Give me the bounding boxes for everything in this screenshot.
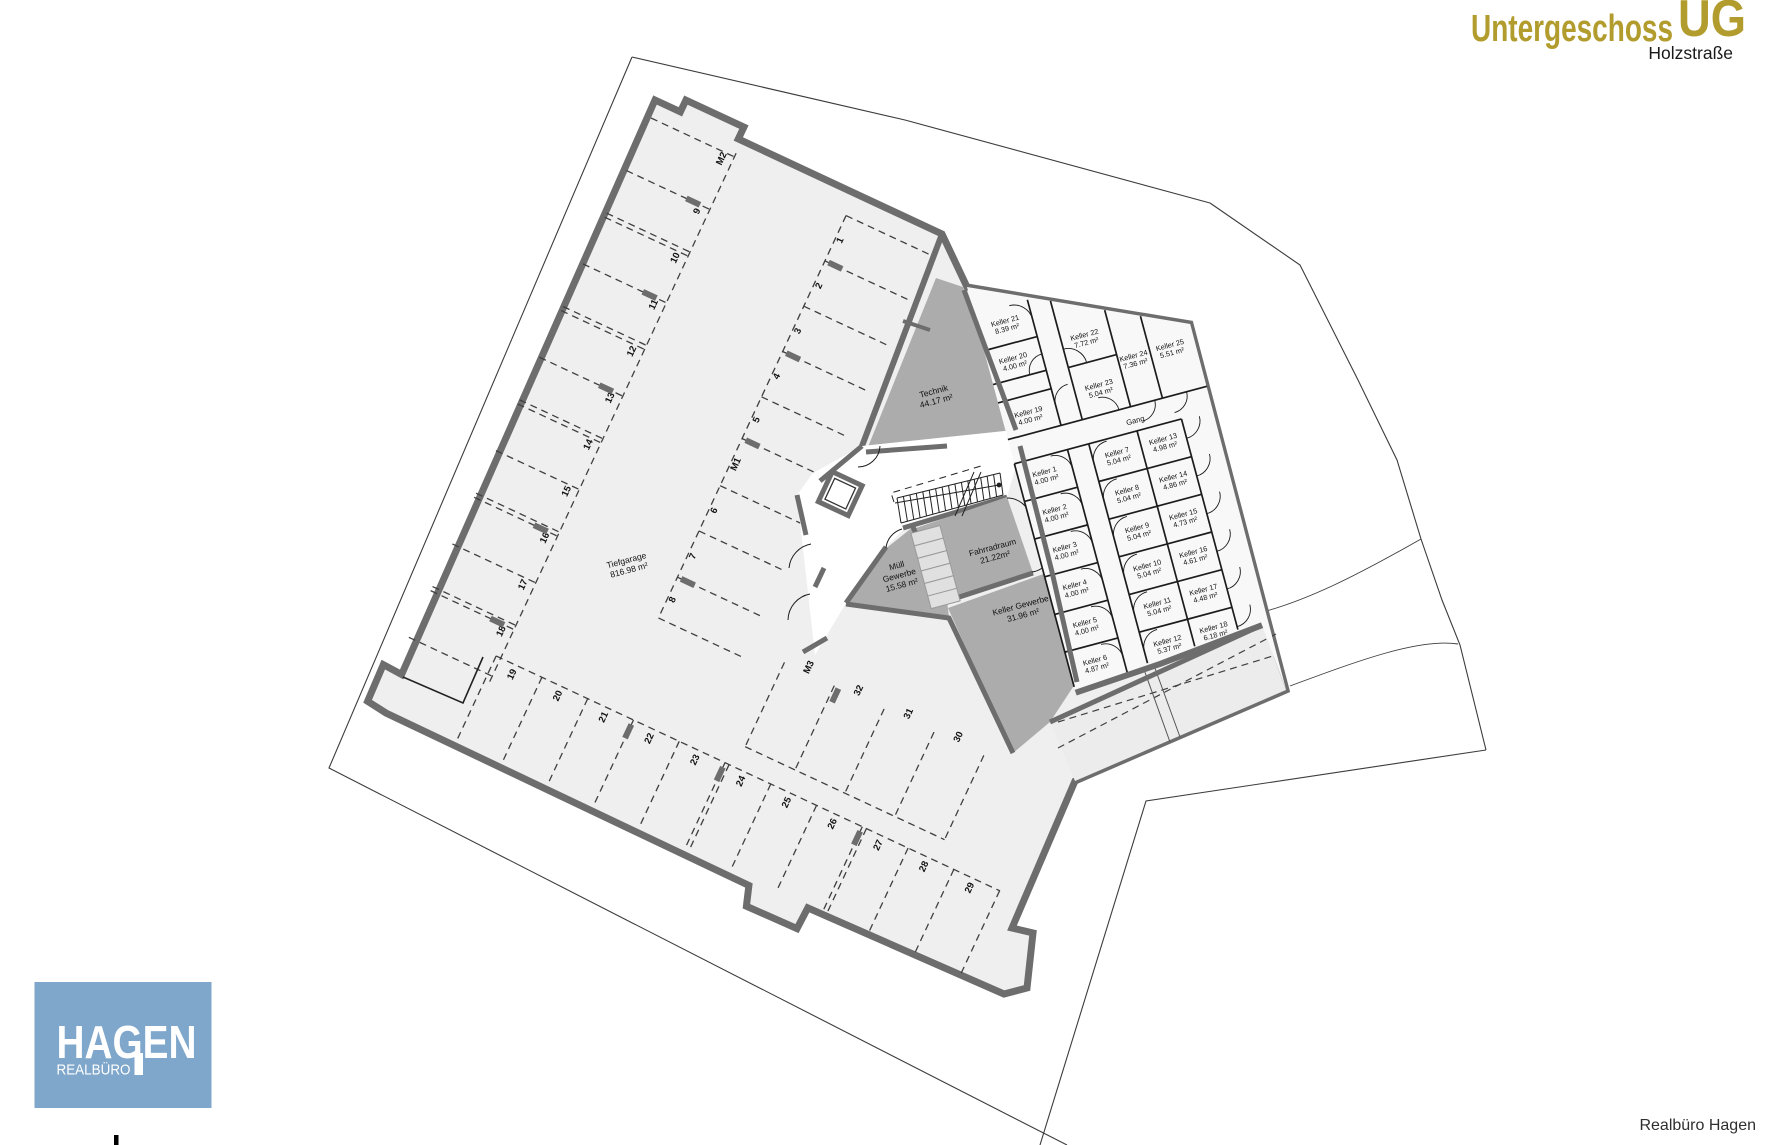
svg-text:UG: UG (1678, 0, 1746, 48)
svg-text:Untergeschoss: Untergeschoss (1471, 8, 1673, 50)
svg-text:Realbüro Hagen: Realbüro Hagen (1639, 1117, 1756, 1134)
svg-text:HAGEN: HAGEN (57, 1016, 197, 1068)
svg-text:REALBÜRO: REALBÜRO (57, 1061, 131, 1079)
svg-text:Holzstraße: Holzstraße (1648, 43, 1733, 63)
